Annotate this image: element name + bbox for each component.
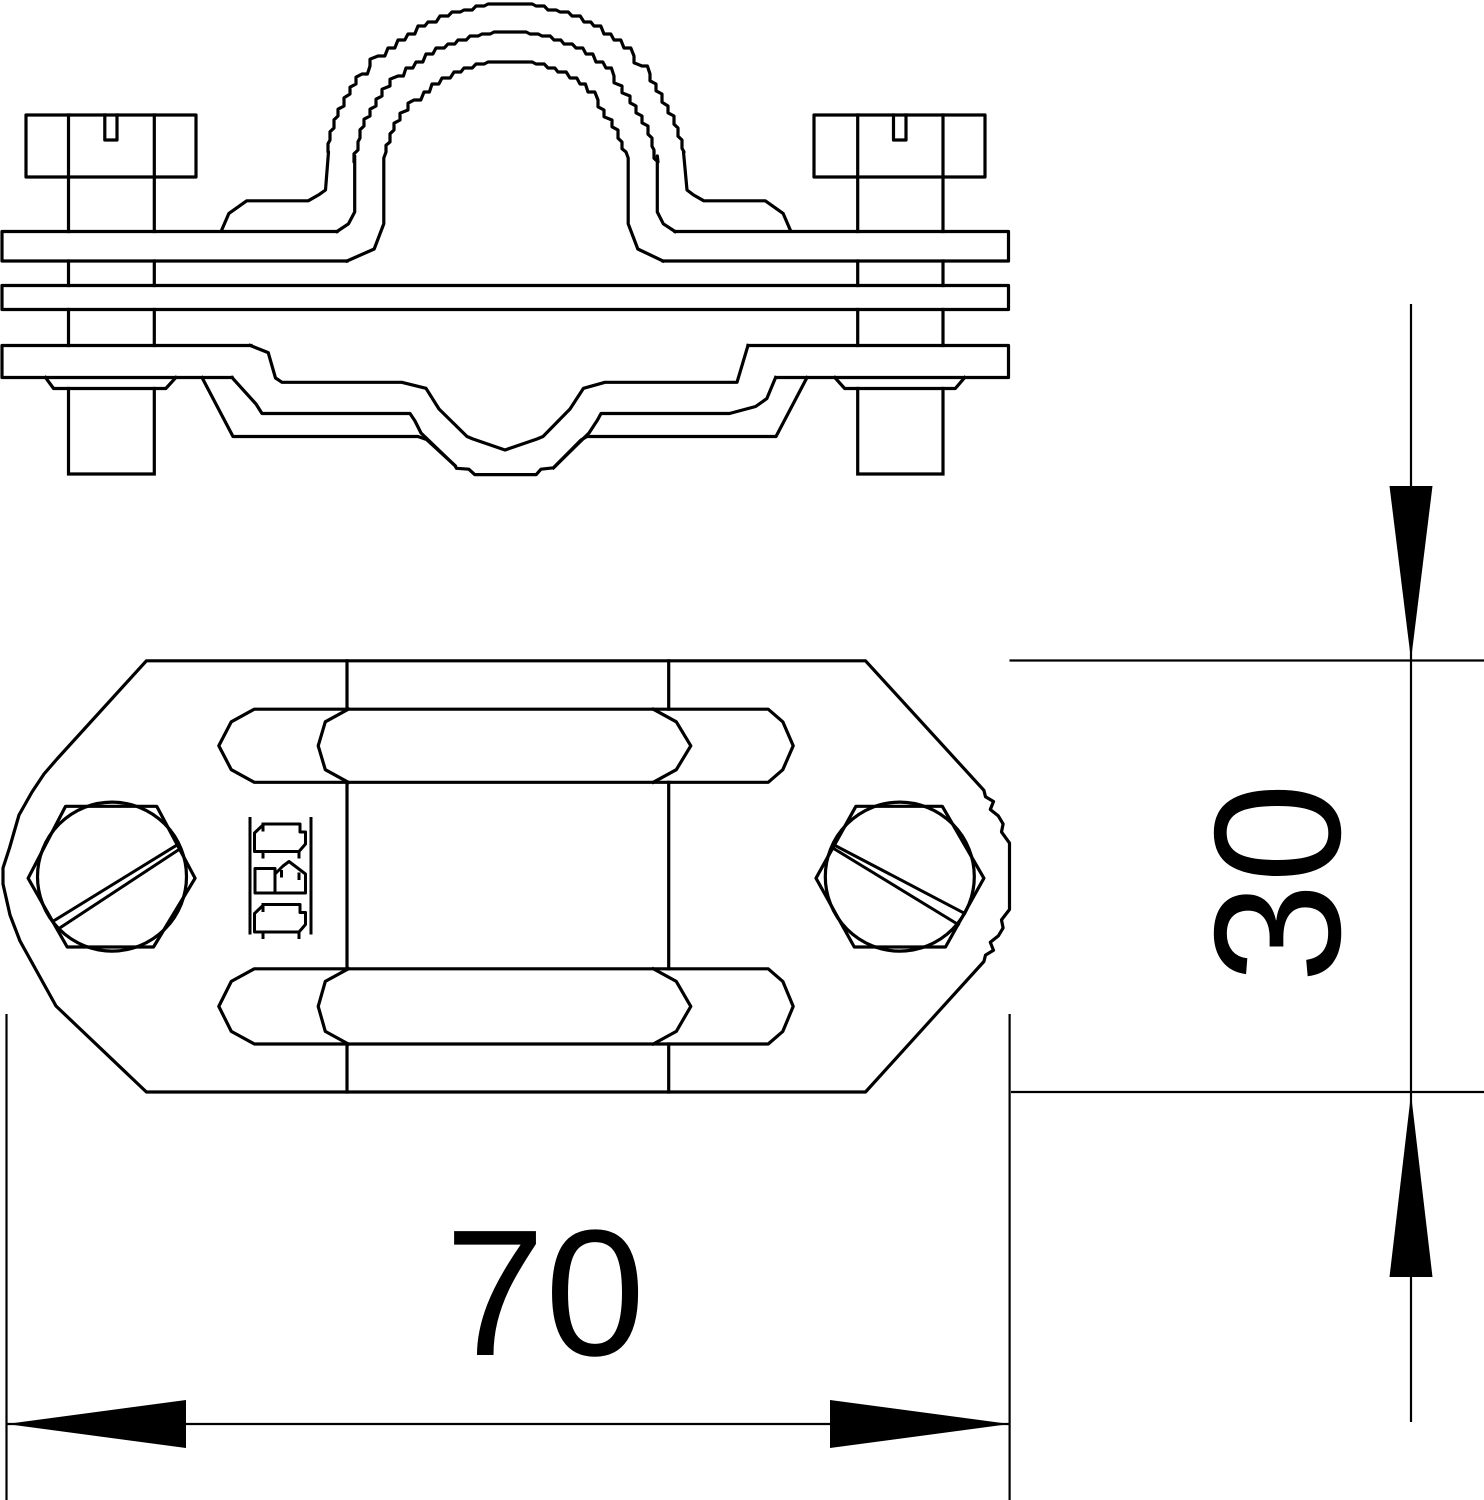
svg-text:30: 30 [1178,783,1379,983]
svg-text:70: 70 [445,1193,645,1394]
